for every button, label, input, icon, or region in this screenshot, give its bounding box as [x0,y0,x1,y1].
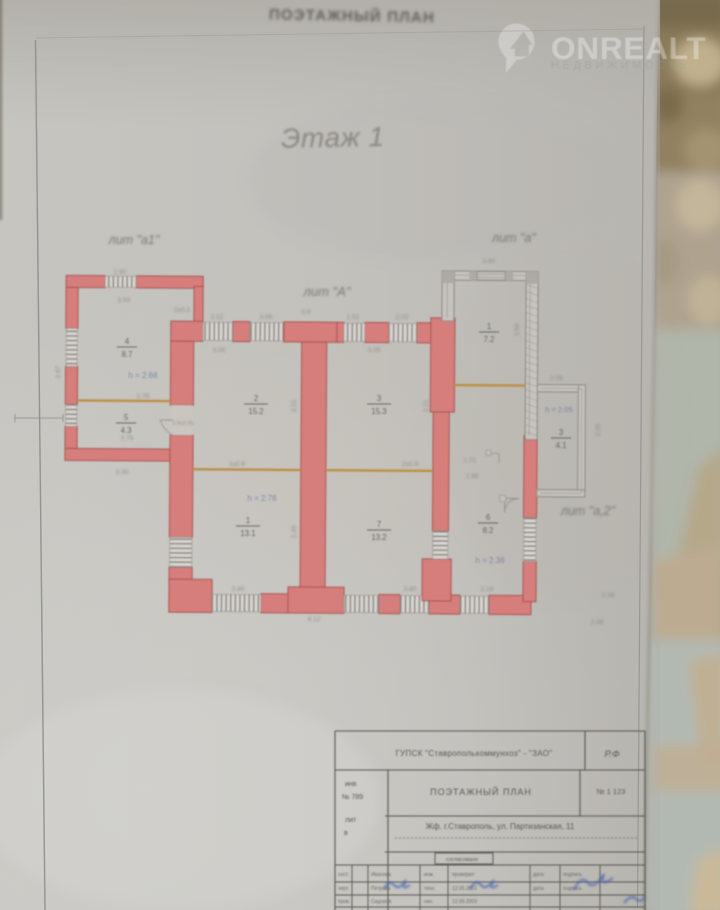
svg-text:лит "а,2": лит "а,2" [560,504,616,518]
svg-text:2.40: 2.40 [291,525,298,538]
svg-text:в: в [344,830,348,837]
svg-text:2.08: 2.08 [550,375,563,382]
svg-text:инв: инв [345,781,357,788]
svg-text:1.90: 1.90 [114,269,127,276]
svg-text:№ 789: № 789 [342,794,363,801]
svg-text:0.9x2.05: 0.9x2.05 [172,421,193,427]
svg-text:4.1: 4.1 [556,441,567,450]
svg-text:2.87: 2.87 [55,365,62,378]
svg-text:8.2: 8.2 [483,526,494,535]
svg-text:подпись: подпись [563,886,582,892]
svg-text:лит "а": лит "а" [491,231,536,245]
svg-text:3.40: 3.40 [404,586,417,593]
svg-text:инж.: инж. [424,872,434,878]
svg-text:3.05: 3.05 [213,347,226,354]
svg-text:7: 7 [377,520,381,529]
svg-text:4: 4 [125,337,130,346]
svg-text:3.05: 3.05 [368,347,381,354]
svg-text:12.05.2003: 12.05.2003 [452,899,477,905]
svg-text:техн.: техн. [424,886,436,892]
svg-text:2.38: 2.38 [591,619,604,626]
svg-text:h = 2.05: h = 2.05 [545,405,572,414]
svg-text:Р.Ф: Р.Ф [604,749,619,760]
svg-text:лит "а1": лит "а1" [108,233,160,247]
svg-text:8.7: 8.7 [122,350,133,359]
svg-text:1.51: 1.51 [347,314,360,321]
svg-text:2.18: 2.18 [481,586,494,593]
svg-text:2.28: 2.28 [602,592,615,599]
svg-text:сост.: сост. [338,872,349,878]
svg-text:1: 1 [246,516,250,525]
svg-text:3: 3 [559,428,563,437]
svg-text:3.21: 3.21 [291,399,298,412]
svg-text:НЕДВИЖИМОСТЬ: НЕДВИЖИМОСТЬ [551,60,689,72]
svg-text:дата: дата [533,872,544,878]
svg-text:1.78: 1.78 [137,393,150,400]
svg-text:1.01: 1.01 [464,457,477,464]
svg-text:3.80: 3.80 [483,258,496,265]
svg-text:проверил: проверил [452,872,474,878]
svg-text:0.9: 0.9 [301,309,310,316]
svg-text:3: 3 [377,394,381,403]
svg-text:2x0.2: 2x0.2 [174,307,190,314]
svg-text:5: 5 [124,413,129,422]
svg-text:№ 1 123: № 1 123 [597,787,626,796]
svg-text:6: 6 [486,513,490,522]
svg-text:согласовано: согласовано [446,857,478,863]
svg-text:3.05: 3.05 [260,314,273,321]
svg-text:подпись: подпись [563,872,582,878]
svg-text:ПОЭТАЖНЫЙ ПЛАН: ПОЭТАЖНЫЙ ПЛАН [430,786,532,797]
svg-text:2: 2 [254,394,258,403]
svg-text:2.05: 2.05 [595,423,602,436]
svg-text:15.2: 15.2 [248,407,263,416]
svg-text:пров.: пров. [338,899,350,905]
svg-text:Иванова: Иванова [371,872,391,878]
svg-text:2.02: 2.02 [211,314,224,321]
svg-text:дата: дата [533,886,544,892]
svg-text:Петрова: Петрова [371,886,391,892]
svg-text:2.88: 2.88 [466,473,479,480]
svg-text:1: 1 [487,322,491,331]
svg-text:3.40: 3.40 [232,586,245,593]
svg-text:Этаж 1: Этаж 1 [281,121,385,154]
svg-text:3.53: 3.53 [118,297,131,304]
svg-text:h = 2.38: h = 2.38 [475,556,505,565]
svg-text:h = 2.68: h = 2.68 [128,371,158,380]
svg-text:13.1: 13.1 [240,529,255,538]
svg-text:ГУПСК "Ставрополькоммунхоз": ГУПСК "Ставрополькоммунхоз" - "ЗАО" [396,749,553,758]
svg-text:7.2: 7.2 [484,335,495,344]
svg-text:1x0.9: 1x0.9 [229,461,245,468]
svg-text:2x0.9: 2x0.9 [402,461,418,468]
svg-text:лит "А": лит "А" [303,284,352,299]
svg-text:лит: лит [345,817,357,824]
svg-text:13.2: 13.2 [371,533,386,542]
svg-text:Сидоров: Сидоров [371,899,392,905]
svg-text:h = 2.78: h = 2.78 [247,494,277,503]
svg-text:15.3: 15.3 [371,407,386,416]
svg-text:3.21: 3.21 [423,399,430,412]
svg-text:2.02: 2.02 [396,314,409,321]
svg-text:черт.: черт. [338,886,349,892]
svg-text:4.3: 4.3 [121,426,132,435]
svg-text:4.12: 4.12 [308,616,321,623]
svg-text:2.76: 2.76 [121,435,134,442]
svg-text:12.05.2003: 12.05.2003 [452,886,477,892]
svg-text:3.50: 3.50 [514,323,521,336]
svg-text:3.30: 3.30 [116,469,129,476]
svg-text:ПОЭТАЖНЫЙ ПЛАН: ПОЭТАЖНЫЙ ПЛАН [269,5,435,26]
svg-text:Жф. г.Ставрополь, ул. Партиз: Жф. г.Ставрополь, ул. Партизанская, 11 [426,822,575,831]
svg-text:нач.: нач. [424,899,433,905]
